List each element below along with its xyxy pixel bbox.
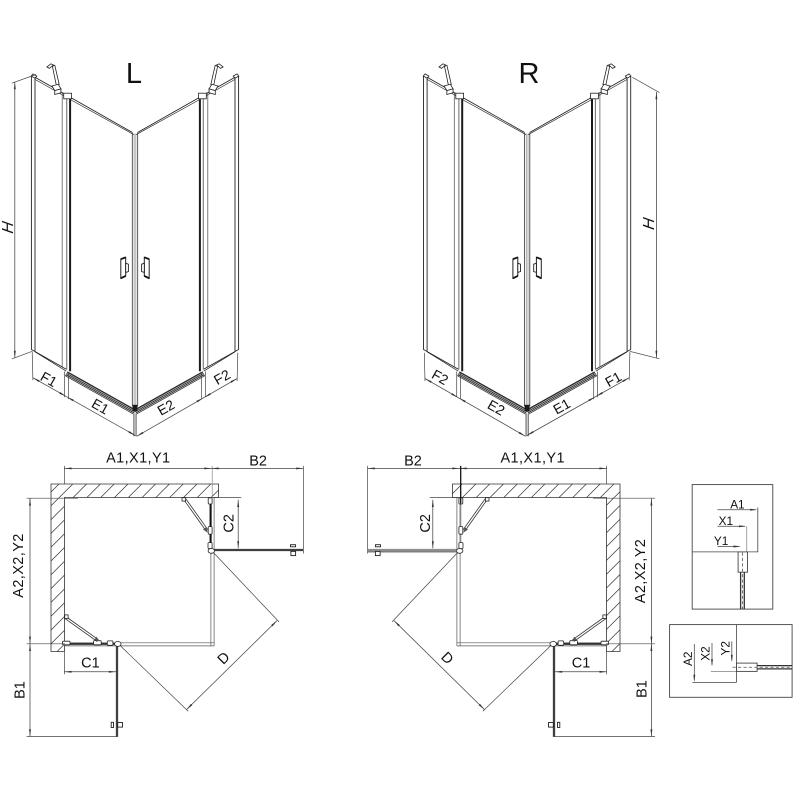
svg-text:R: R [519, 58, 540, 90]
svg-text:Y2: Y2 [718, 641, 732, 655]
svg-text:A2: A2 [681, 652, 695, 666]
svg-text:C1: C1 [81, 656, 100, 672]
svg-text:A2,X2,Y2: A2,X2,Y2 [633, 539, 649, 603]
svg-text:Y1: Y1 [714, 534, 728, 548]
svg-text:A1,X1,Y1: A1,X1,Y1 [500, 451, 564, 467]
svg-text:B1: B1 [13, 681, 29, 699]
svg-text:C2: C2 [418, 514, 434, 533]
svg-text:A1,X1,Y1: A1,X1,Y1 [106, 451, 170, 467]
svg-text:X2: X2 [699, 646, 713, 660]
svg-text:A1: A1 [730, 497, 744, 511]
svg-text:B1: B1 [635, 680, 651, 698]
svg-text:B2: B2 [404, 454, 422, 470]
svg-text:C2: C2 [222, 514, 238, 533]
svg-text:C1: C1 [572, 656, 591, 672]
svg-text:X1: X1 [719, 514, 733, 528]
svg-text:L: L [126, 58, 142, 90]
svg-text:B2: B2 [249, 454, 267, 470]
svg-text:A2,X2,Y2: A2,X2,Y2 [11, 533, 27, 597]
